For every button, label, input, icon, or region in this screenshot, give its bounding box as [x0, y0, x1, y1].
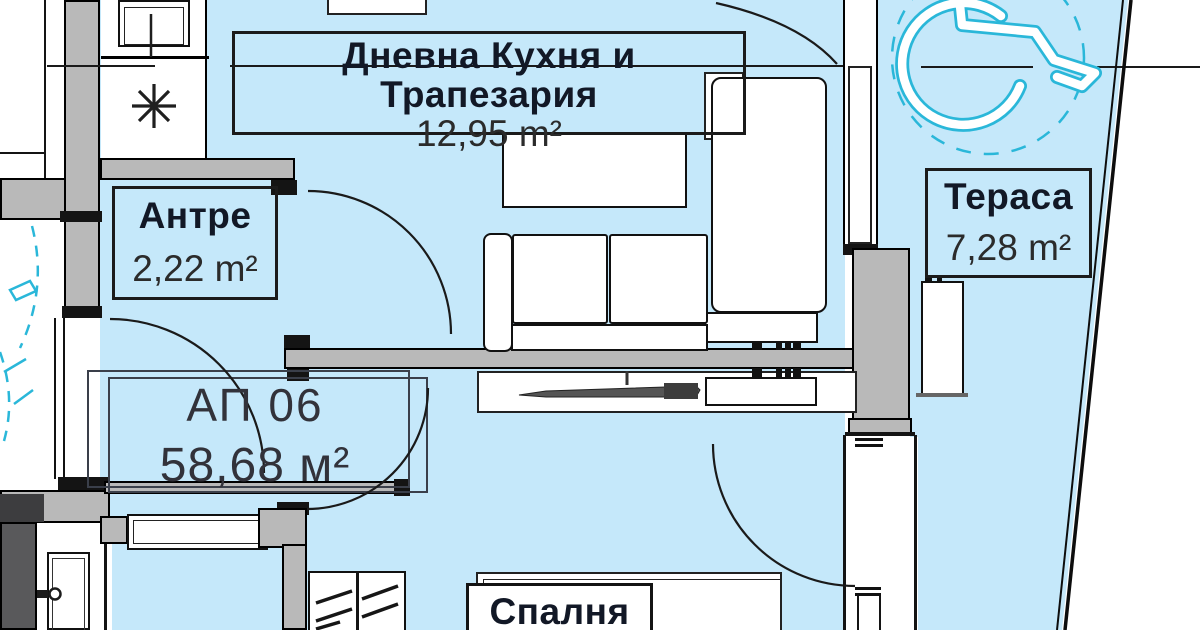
door-handle-icon: [37, 589, 61, 600]
apartment-id: АП 06: [90, 378, 420, 432]
bedroom-door-arc: [713, 444, 855, 586]
room-label-living: Дневна Кухня и Трапезария 12,95 m²: [232, 31, 746, 135]
room-area: 12,95 m²: [416, 115, 562, 152]
cooktop-burner-icon: [132, 84, 176, 128]
building-edge-line: [1057, 0, 1131, 630]
room-name: Дневна Кухня и Трапезария: [235, 37, 743, 115]
room-name: Спалня: [489, 593, 629, 630]
tv: [519, 371, 700, 399]
room-label-terrace: Тераса 7,28 m²: [925, 168, 1092, 278]
room-name: Антре: [139, 197, 252, 236]
room-area: 7,28 m²: [946, 229, 1071, 266]
floor-plan: Дневна Кухня и Трапезария 12,95 m² Антре…: [0, 0, 1200, 630]
room-label-hall: Антре 2,22 m²: [112, 186, 278, 300]
wardrobe-rail-lines: [316, 586, 398, 629]
wheelchair-accessible-icon: [892, 0, 1095, 154]
room-area: 2,22 m²: [132, 250, 257, 287]
room-label-bedroom: Спалня: [466, 583, 653, 630]
room-name: Тераса: [944, 178, 1073, 217]
common-area-door-dashes: [0, 226, 38, 441]
apartment-area: 58,68 м²: [90, 438, 420, 493]
hall-door-arc: [308, 191, 451, 334]
